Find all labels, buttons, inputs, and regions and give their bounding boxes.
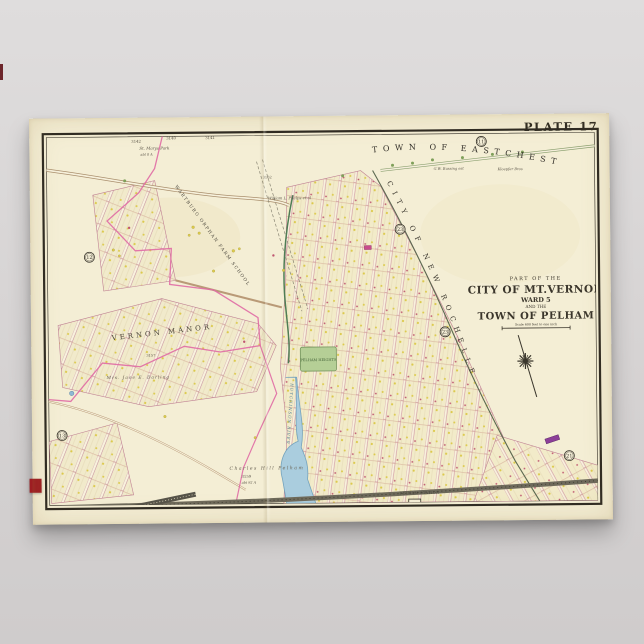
annotation-label: Kloepfer Bros (497, 167, 523, 171)
map-sheet-svg: PLATE 17 (29, 113, 613, 525)
pond (69, 391, 73, 395)
plate-ref-top: 11 (476, 136, 486, 146)
plate-ref-left-lower: 13 (57, 430, 67, 440)
svg-text:21: 21 (566, 453, 572, 459)
annotation-number: 3159 (241, 474, 251, 479)
annotation-label: William L. Phelps et al (268, 195, 312, 200)
title-line1: PART OF THE (510, 276, 562, 283)
title-line5: TOWN OF PELHAM (478, 310, 595, 322)
svg-text:11: 11 (478, 139, 484, 145)
annotation-label: abt 8 A (140, 153, 153, 157)
map-poster: PLATE 17 (29, 113, 613, 525)
annotation-label: abt 92 A (242, 481, 257, 485)
svg-text:13: 13 (59, 433, 65, 439)
annotation-label: G.W. Bussing est (434, 167, 465, 171)
plate-ref-right-upper: 23 (395, 224, 405, 234)
svg-text:23: 23 (442, 330, 448, 336)
red-edge-mark (30, 479, 42, 493)
wall-red-sliver (0, 64, 3, 80)
plate-ref-right-mid: 23 (440, 327, 450, 337)
annotation-number: 3157 (146, 354, 156, 358)
annotation-number: 3142 (131, 139, 141, 144)
region-label-station: PELHAM STATION (400, 491, 440, 495)
region-label-park: PELHAM HEIGHTS (300, 358, 337, 362)
annotation-label: Charles Hill Pelham (229, 465, 304, 472)
plate-ref-right-lower: 21 (564, 451, 574, 461)
wall-background: PLATE 17 (0, 0, 644, 644)
svg-text:12: 12 (86, 255, 92, 261)
title-line2: CITY OF MT.VERNON (468, 283, 604, 296)
building-block (364, 246, 371, 250)
annotation-label: St. Marys Park (139, 145, 170, 150)
plate-label: PLATE 17 (524, 119, 598, 134)
svg-text:23: 23 (397, 227, 403, 233)
title-line3: WARD 5 (520, 296, 551, 304)
annotation-label: Mrs. Jane E. Darling (106, 374, 170, 380)
title-line4: AND THE (524, 304, 546, 309)
annotation-number: 3162 (263, 175, 272, 179)
title-scale-text: Scale 600 feet to one inch (515, 322, 557, 326)
plate-ref-left-upper: 12 (84, 252, 94, 262)
